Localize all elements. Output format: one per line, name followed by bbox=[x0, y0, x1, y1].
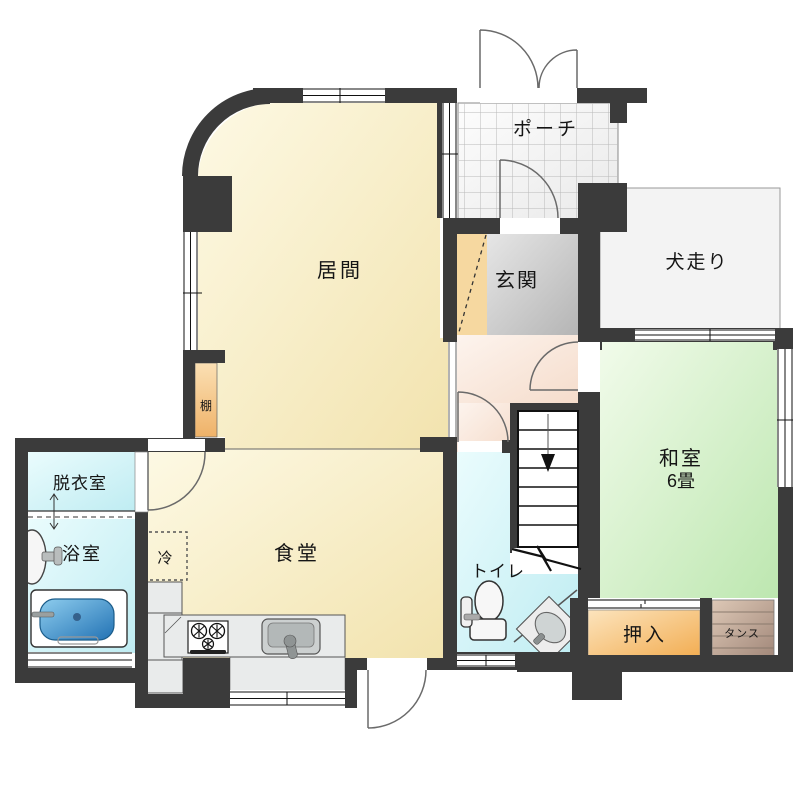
window-porch-side bbox=[442, 103, 458, 218]
wall-segment bbox=[700, 598, 712, 658]
stove-grill-bar bbox=[190, 650, 226, 654]
wall-segment bbox=[183, 350, 225, 363]
label-bath: 浴室 bbox=[62, 544, 102, 564]
wall-segment bbox=[560, 218, 578, 234]
label-closet: 押入 bbox=[623, 624, 667, 646]
wall-segment bbox=[135, 694, 183, 708]
label-entrance: 玄関 bbox=[495, 269, 539, 292]
wall-segment bbox=[420, 437, 457, 452]
wall-segment bbox=[427, 658, 443, 670]
label-toilet: トイレ bbox=[471, 562, 525, 581]
kitchen-sink bbox=[262, 619, 320, 660]
wall-segment bbox=[570, 655, 793, 672]
wall-segment bbox=[578, 183, 627, 232]
wall-segment bbox=[183, 176, 232, 232]
sink-faucet-base bbox=[284, 635, 296, 647]
living-hall-divider bbox=[449, 338, 456, 438]
label-tansu: タンス bbox=[724, 627, 760, 640]
wall-segment bbox=[517, 652, 583, 672]
wall-segment bbox=[385, 88, 457, 103]
opening bbox=[480, 88, 577, 103]
floor-plan: ポーチ 玄関 犬走り 居間 食堂 和室 6畳 脱衣室 浴室 トイレ 押入 タンス… bbox=[0, 0, 800, 800]
toilet-tank bbox=[470, 619, 506, 640]
kitchen-bumpout-floor bbox=[230, 656, 345, 692]
label-washitsu: 和室 bbox=[659, 447, 703, 470]
wall-segment bbox=[15, 668, 135, 683]
wall-segment bbox=[443, 438, 457, 658]
wall-segment bbox=[510, 403, 578, 411]
wall-segment bbox=[443, 234, 457, 338]
bathtub-faucet bbox=[32, 612, 54, 617]
opening bbox=[578, 342, 600, 392]
washbasin-handle bbox=[54, 547, 62, 565]
kitchen-counter-segment bbox=[143, 582, 182, 613]
wall-segment bbox=[510, 403, 518, 553]
label-dining: 食堂 bbox=[274, 542, 320, 565]
porch-double-door-right bbox=[539, 50, 577, 88]
toilet-handle bbox=[464, 614, 480, 620]
fusuma-lines bbox=[588, 600, 700, 608]
back-door bbox=[368, 670, 426, 728]
window-bathroom bbox=[28, 652, 132, 668]
opening bbox=[500, 218, 560, 234]
floor-plan-canvas: ポーチ 玄関 犬走り 居間 食堂 和室 6畳 脱衣室 浴室 トイレ 押入 タンス… bbox=[0, 0, 800, 800]
label-fridge: 冷 bbox=[157, 550, 172, 567]
wall-segment bbox=[610, 103, 627, 123]
wall-segment bbox=[183, 658, 230, 708]
label-inubashiri: 犬走り bbox=[665, 251, 728, 273]
toilet-arm bbox=[461, 597, 472, 627]
wall-segment bbox=[572, 672, 622, 700]
label-washitsu-size: 6畳 bbox=[667, 471, 695, 491]
staircase bbox=[512, 411, 581, 573]
wall-segment bbox=[578, 392, 600, 598]
washitsu-floor bbox=[600, 342, 778, 598]
opening bbox=[135, 452, 148, 512]
kitchen-counter-segment bbox=[143, 660, 183, 693]
porch-double-door-left bbox=[480, 30, 538, 88]
wall-segment bbox=[570, 598, 588, 658]
wall-segment bbox=[443, 328, 457, 342]
window-top-living bbox=[303, 88, 385, 103]
wall-segment bbox=[253, 88, 305, 103]
window-kitchen bbox=[230, 690, 345, 707]
window-toilet bbox=[457, 654, 515, 667]
window-washitsu-top bbox=[635, 329, 775, 341]
closet-sliding-door bbox=[588, 600, 700, 608]
label-dressing: 脱衣室 bbox=[53, 474, 107, 493]
opening bbox=[367, 658, 427, 670]
wall-segment bbox=[345, 658, 367, 670]
wall-segment bbox=[15, 438, 28, 683]
bathtub-drain bbox=[73, 613, 81, 621]
stove bbox=[188, 621, 228, 654]
label-porch: ポーチ bbox=[513, 118, 579, 140]
label-shelf: 棚 bbox=[200, 398, 212, 413]
wall-segment bbox=[502, 440, 518, 453]
window-washitsu-right bbox=[777, 349, 793, 487]
opening bbox=[458, 441, 502, 452]
wall-segment bbox=[578, 230, 600, 328]
wall-segment bbox=[183, 363, 195, 450]
wall-segment bbox=[443, 218, 500, 234]
label-living: 居間 bbox=[317, 260, 363, 282]
wall-segment bbox=[135, 512, 148, 708]
wall-segment bbox=[577, 88, 647, 103]
opening bbox=[148, 439, 205, 451]
bathtub bbox=[31, 590, 127, 647]
